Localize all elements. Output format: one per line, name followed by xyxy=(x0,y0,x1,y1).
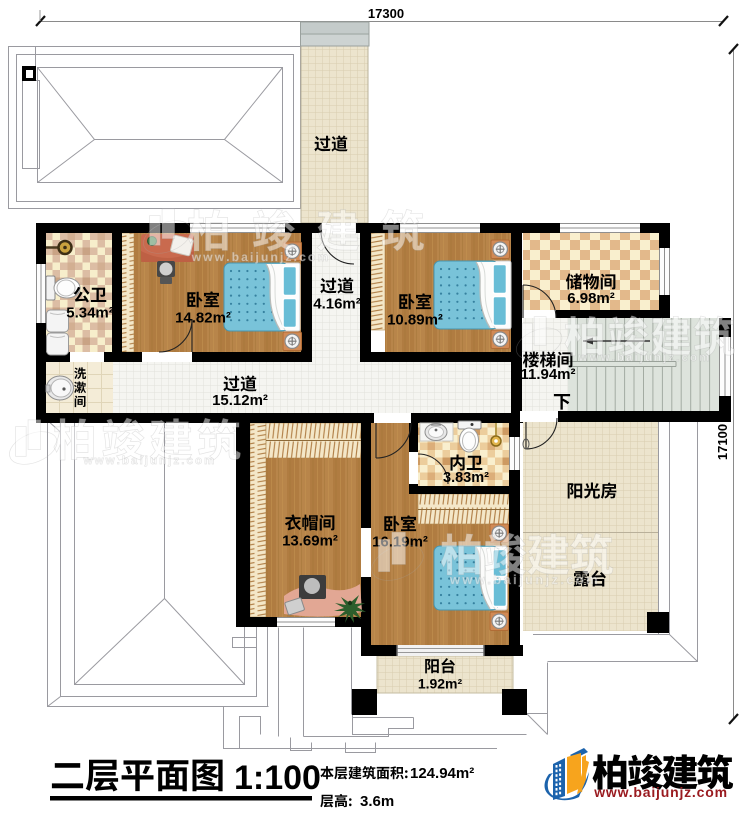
svg-text:17100: 17100 xyxy=(715,424,730,460)
svg-text:3.83m²: 3.83m² xyxy=(443,470,489,486)
svg-text:4.16m²: 4.16m² xyxy=(313,296,361,313)
svg-text:11.94m²: 11.94m² xyxy=(520,366,575,383)
svg-text:14.82m²: 14.82m² xyxy=(175,310,231,327)
svg-text:10.89m²: 10.89m² xyxy=(387,312,443,329)
svg-text:17300: 17300 xyxy=(368,6,404,21)
svg-text:1:100: 1:100 xyxy=(234,759,321,797)
svg-text:www.baijunjz.com: www.baijunjz.com xyxy=(593,784,728,800)
svg-text:5.34m²: 5.34m² xyxy=(66,305,114,322)
svg-text:1.92m²: 1.92m² xyxy=(418,676,463,692)
svg-text:6.98m²: 6.98m² xyxy=(567,290,615,307)
svg-text:124.94m²: 124.94m² xyxy=(410,765,474,782)
svg-text:3.6m: 3.6m xyxy=(360,793,394,810)
svg-text:15.12m²: 15.12m² xyxy=(212,392,268,409)
svg-text:13.69m²: 13.69m² xyxy=(282,533,338,550)
